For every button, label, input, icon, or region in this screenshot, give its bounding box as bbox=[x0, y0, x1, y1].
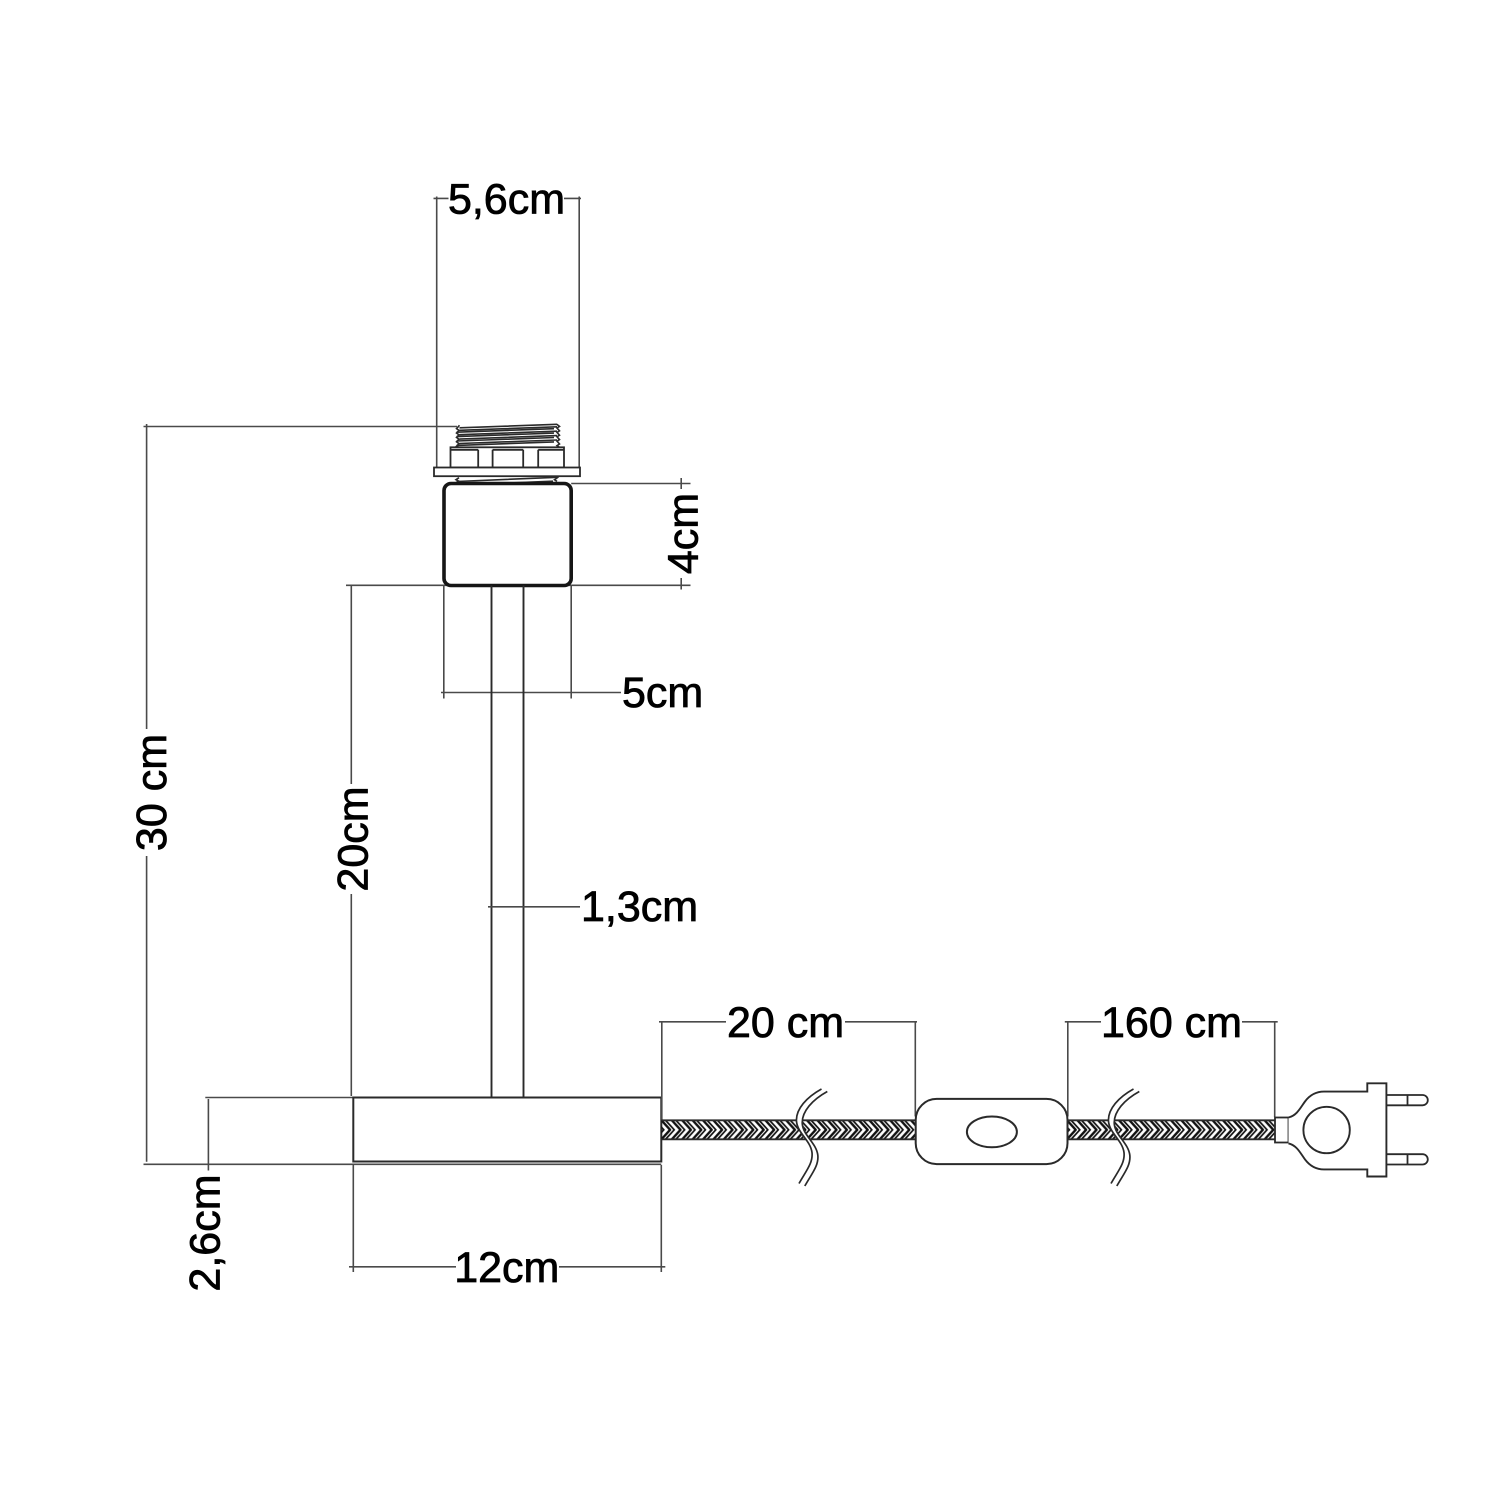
svg-text:1,3cm: 1,3cm bbox=[581, 883, 698, 931]
svg-text:20 cm: 20 cm bbox=[727, 999, 844, 1047]
svg-text:160 cm: 160 cm bbox=[1101, 999, 1242, 1047]
svg-text:12cm: 12cm bbox=[454, 1244, 559, 1292]
svg-text:5cm: 5cm bbox=[622, 669, 703, 717]
svg-text:5,6cm: 5,6cm bbox=[448, 176, 565, 224]
svg-text:20cm: 20cm bbox=[330, 786, 378, 891]
svg-text:4cm: 4cm bbox=[660, 493, 708, 574]
svg-text:2,6cm: 2,6cm bbox=[182, 1174, 230, 1291]
svg-text:30 cm: 30 cm bbox=[128, 734, 176, 851]
